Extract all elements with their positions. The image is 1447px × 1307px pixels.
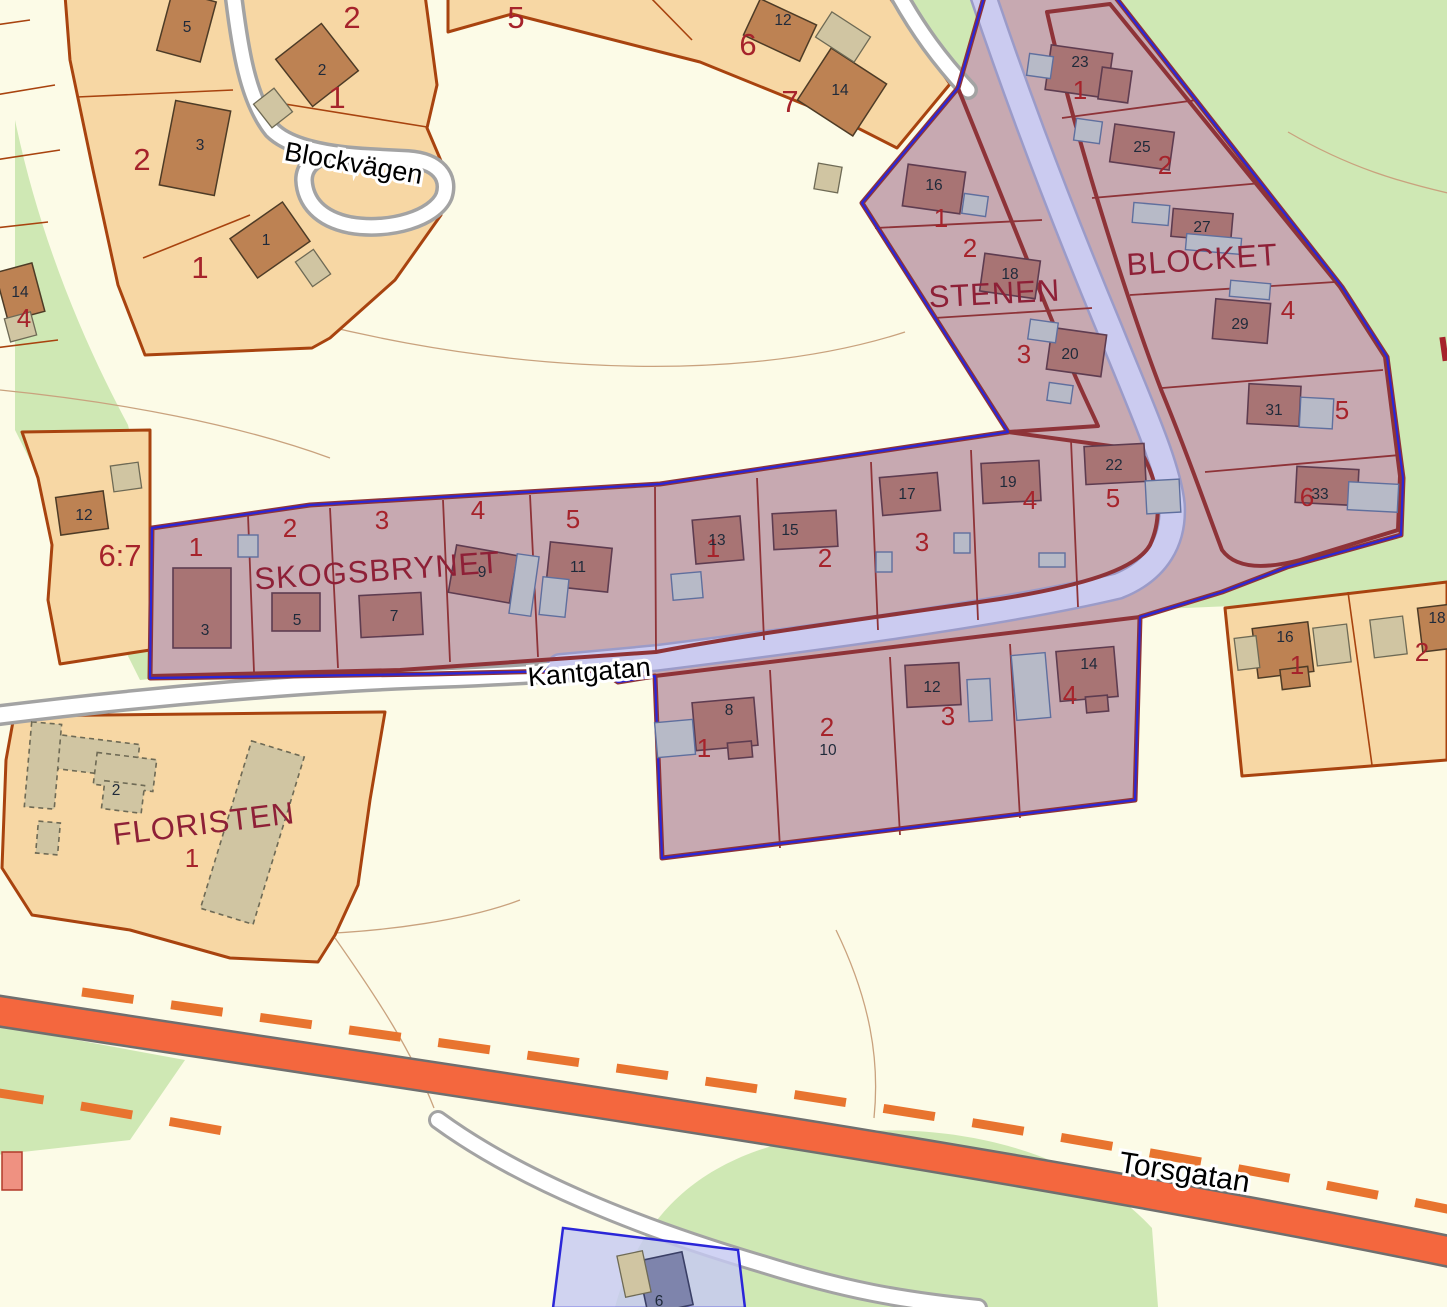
gray-shed [1011,653,1051,721]
lot-label: 4 [471,495,485,525]
building-label: 33 [1311,486,1328,503]
lot-label: 1 [697,733,711,763]
gray-shed [1347,482,1398,513]
lot-label: 3 [1017,339,1031,369]
building-floristen [24,722,61,809]
building-label: 16 [1276,629,1293,646]
gray-shed [962,193,989,216]
building-label: 2 [318,62,327,79]
building-label: 13 [708,532,725,549]
lot-label: 4 [1023,485,1037,515]
lot-label: 2 [343,0,360,35]
lot-label: 2 [963,233,977,263]
building-label: 16 [925,177,942,194]
building-label: 7 [390,608,399,625]
lot-label: 6:7 [98,538,141,573]
building-label: 20 [1061,346,1079,363]
map-canvas[interactable]: Blockvägen Kantgatan Torsgatan STENEN BL… [0,0,1447,1307]
lot-label: 3 [915,527,929,557]
gray-shed [655,719,696,757]
building-label: 23 [1071,54,1088,71]
building-label: 2 [112,782,121,799]
building-bl23-wing [1098,67,1132,103]
building-label: 18 [1428,610,1445,627]
lot-label: 5 [507,0,524,35]
parcel-area-east[interactable] [1225,582,1447,776]
building-label: 19 [999,474,1016,491]
building-floristen [101,781,144,814]
building-label: 12 [774,12,791,29]
building-label: 5 [183,19,192,36]
gray-shed [1145,479,1181,514]
lot-label: 2 [820,712,834,742]
building-label: 1 [262,232,271,249]
building-s8-wing [727,741,752,759]
gray-shed [1047,382,1073,403]
lot-label: 2 [818,543,832,573]
building-label: 22 [1105,457,1122,474]
lot-label: 1 [934,203,948,233]
gray-shed [1028,319,1059,343]
building-label: 3 [196,137,205,154]
gray-shed [1132,202,1170,225]
building-label: 14 [831,82,849,99]
shed [1370,616,1407,658]
building-label: 8 [725,702,734,719]
lot-label: 2 [283,513,297,543]
building-label: 18 [1001,266,1018,283]
building-floristen [36,821,61,855]
lot-label: 1 [185,843,199,873]
building-label: 15 [781,522,798,539]
gray-shed [967,678,992,721]
building-label: 12 [923,679,940,696]
lot-label: 2 [1158,150,1172,180]
shed [814,163,842,193]
building-label: 17 [898,486,915,503]
building-label: 29 [1231,316,1248,333]
lot-label: 5 [1106,483,1120,513]
lot-label: 1 [1073,75,1087,105]
shed [110,462,141,492]
gray-shed [1299,397,1334,429]
small-red-parcel [2,1152,22,1190]
lot-label: 3 [375,505,389,535]
building-label: 27 [1193,219,1210,236]
lot-label: 4 [17,303,31,333]
lot-label: 2 [1415,637,1429,667]
building-label: 11 [570,559,586,576]
gray-shed [1229,280,1270,299]
lot-label: 2 [133,142,150,177]
shed [1234,636,1260,670]
gray-shed [876,552,892,572]
block-label-stenen: STENEN [928,273,1061,315]
map-stage: Blockvägen Kantgatan Torsgatan STENEN BL… [0,0,1447,1307]
gray-shed [954,533,970,553]
building-label: 31 [1265,402,1282,419]
lot-label: 5 [566,504,580,534]
lot-label: 1 [189,532,203,562]
building-label: 25 [1133,139,1150,156]
gray-shed [1039,553,1065,567]
building-label: 3 [201,622,210,639]
building-label: 10 [819,742,837,759]
building-s14-wing [1085,695,1108,713]
building-label: 9 [478,564,487,581]
lot-label: 1 [328,80,345,115]
lot-label: 5 [1335,395,1349,425]
lot-label: 4 [1063,680,1077,710]
gray-shed [1027,53,1054,78]
lot-label: 4 [1281,295,1295,325]
building-label: 12 [75,507,92,524]
building-label: 6 [655,1293,664,1307]
shed [1313,624,1351,666]
building-label: 5 [293,612,302,629]
gray-shed [671,572,703,601]
building-label: 14 [11,284,29,301]
lot-label: 1 [191,250,208,285]
lot-label: 7 [781,84,798,119]
gray-shed [539,577,569,618]
gray-shed [238,535,258,557]
lot-label: 6 [739,27,756,62]
building-label: 14 [1080,656,1098,673]
lot-label: 1 [1290,650,1304,680]
gray-shed [1074,118,1103,143]
lot-label: 3 [941,701,955,731]
